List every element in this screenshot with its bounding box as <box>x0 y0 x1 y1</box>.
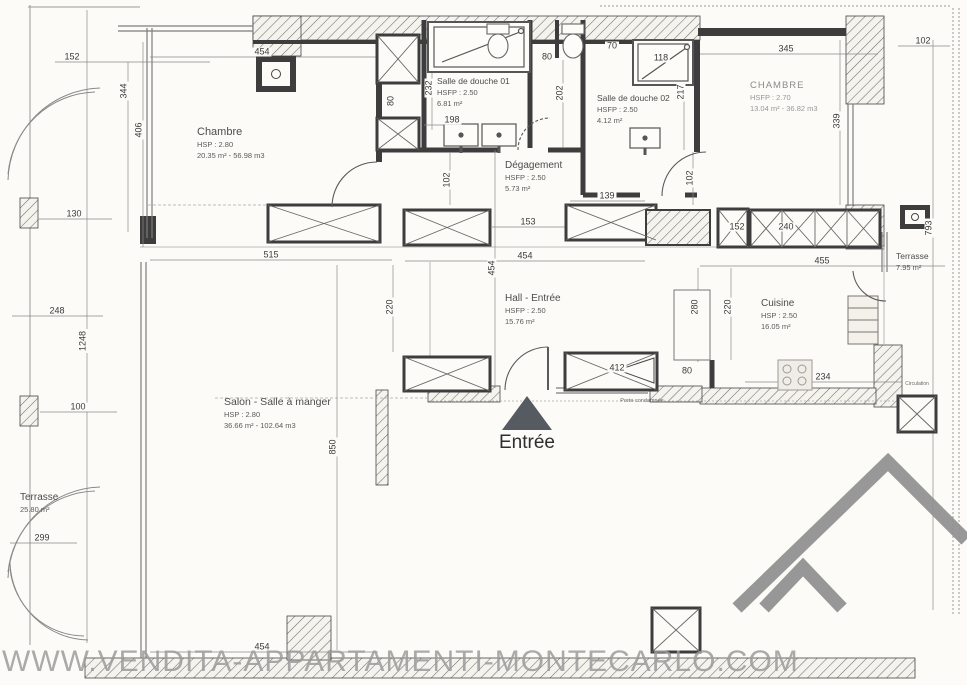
dim-label: 412 <box>607 364 626 373</box>
room-area: 4.12 m² <box>597 116 670 127</box>
dim-label: 102 <box>686 168 695 187</box>
terrace-curves <box>8 88 100 640</box>
dim-label: 299 <box>32 534 51 543</box>
watermark-text: WWW.VENDITA-APPARTAMENTI-MONTECARLO.COM <box>2 645 799 679</box>
bathtub-icon <box>428 22 530 72</box>
dim-label: 406 <box>135 120 144 139</box>
dim-label: 344 <box>120 81 129 100</box>
room-name: Terrasse <box>896 251 929 261</box>
window-walls <box>118 26 887 658</box>
room-label-chambre-2: CHAMBRE HSFP : 2.70 13.04 m² - 36.82 m3 <box>750 80 818 115</box>
dim-label: 454 <box>515 252 534 261</box>
room-label-salon: Salon - Salle à manger HSP : 2.80 36.66 … <box>224 396 331 432</box>
room-name: Terrasse <box>20 492 58 503</box>
dim-label: 70 <box>605 42 619 51</box>
room-area: 16.05 m² <box>761 322 797 333</box>
dim-label: 280 <box>691 297 700 316</box>
dim-label: 217 <box>677 82 686 101</box>
dim-label: 339 <box>833 111 842 130</box>
dim-label: 152 <box>727 223 746 232</box>
floorplan-page: Chambre HSP : 2.80 20.35 m² - 56.98 m3 S… <box>0 0 967 685</box>
dim-label: 234 <box>813 373 832 382</box>
room-area: 15.76 m² <box>505 317 561 328</box>
room-label-terrasse-left: Terrasse 25.80 m² <box>20 492 58 516</box>
room-height: HSP : 2.50 <box>761 311 797 322</box>
column-markers <box>256 56 930 229</box>
room-area: 5.73 m² <box>505 184 562 195</box>
dim-label: 455 <box>812 257 831 266</box>
room-area: 13.04 m² - 36.82 m3 <box>750 104 818 115</box>
dim-label: 850 <box>329 437 338 456</box>
dim-label: 454 <box>252 48 271 57</box>
dim-label: 240 <box>776 223 795 232</box>
dim-label: 100 <box>68 403 87 412</box>
dim-label: 202 <box>556 83 565 102</box>
room-label-douche-02: Salle de douche 02 HSFP : 2.50 4.12 m² <box>597 93 670 127</box>
room-name: Salle de douche 02 <box>597 93 670 103</box>
fridge-icon <box>848 296 878 344</box>
room-name: CHAMBRE <box>750 80 818 91</box>
hatched-walls <box>20 16 915 678</box>
dim-label: 198 <box>442 116 461 125</box>
dim-label: 220 <box>724 297 733 316</box>
room-height: HSFP : 2.50 <box>505 173 562 184</box>
room-height: HSFP : 2.70 <box>750 93 818 104</box>
room-label-degagement: Dégagement HSFP : 2.50 5.73 m² <box>505 160 562 195</box>
room-label-hall-entree: Hall - Entrée HSFP : 2.50 15.76 m² <box>505 293 561 328</box>
dim-label: 248 <box>47 307 66 316</box>
dim-label: 345 <box>776 45 795 54</box>
door-arcs <box>332 118 886 390</box>
entrance-label: Entrée <box>499 432 555 454</box>
dim-label: 1248 <box>79 329 88 353</box>
room-height: HSFP : 2.50 <box>505 306 561 317</box>
circulation-note: Circulation <box>905 381 929 387</box>
dim-label: 80 <box>387 94 396 108</box>
room-label-chambre-1: Chambre HSP : 2.80 20.35 m² - 56.98 m3 <box>197 126 265 162</box>
dim-label: 102 <box>913 37 932 46</box>
room-height: HSP : 2.80 <box>197 140 265 151</box>
room-name: Dégagement <box>505 160 562 171</box>
dim-label: 80 <box>680 367 694 376</box>
room-area: 25.80 m² <box>20 505 58 516</box>
roof-watermark-icon <box>737 462 966 608</box>
room-area: 20.35 m² - 56.98 m3 <box>197 151 265 162</box>
dim-label: 102 <box>443 170 452 189</box>
dim-label: 220 <box>386 297 395 316</box>
room-area: 7.95 m² <box>896 263 929 274</box>
dim-label: 232 <box>425 78 434 97</box>
room-name: Salle de douche 01 <box>437 76 510 86</box>
room-name: Chambre <box>197 126 265 138</box>
room-height: HSP : 2.80 <box>224 410 331 421</box>
dim-label: 130 <box>64 210 83 219</box>
room-label-douche-01: Salle de douche 01 HSFP : 2.50 6.81 m² <box>437 76 510 110</box>
room-area: 6.81 m² <box>437 99 510 110</box>
room-name: Hall - Entrée <box>505 293 561 304</box>
room-label-cuisine: Cuisine HSP : 2.50 16.05 m² <box>761 298 797 333</box>
dim-label: 515 <box>261 251 280 260</box>
dim-label: 793 <box>925 218 934 237</box>
dim-label: 80 <box>540 53 554 62</box>
dim-label: 139 <box>597 192 616 201</box>
hob-icon <box>778 360 812 390</box>
dim-label: 153 <box>518 218 537 227</box>
dim-label: 454 <box>488 258 497 277</box>
room-height: HSFP : 2.50 <box>597 105 670 116</box>
room-label-terrasse-right: Terrasse 7.95 m² <box>896 251 929 274</box>
room-name: Salon - Salle à manger <box>224 396 331 408</box>
room-name: Cuisine <box>761 298 797 309</box>
dim-label: 118 <box>652 54 670 63</box>
room-area: 36.66 m² - 102.64 m3 <box>224 421 331 432</box>
porte-condamnee-note: Porte condamnée <box>620 398 663 404</box>
room-height: HSFP : 2.50 <box>437 88 510 99</box>
shower-icon <box>633 40 693 85</box>
dim-label: 152 <box>62 53 81 62</box>
